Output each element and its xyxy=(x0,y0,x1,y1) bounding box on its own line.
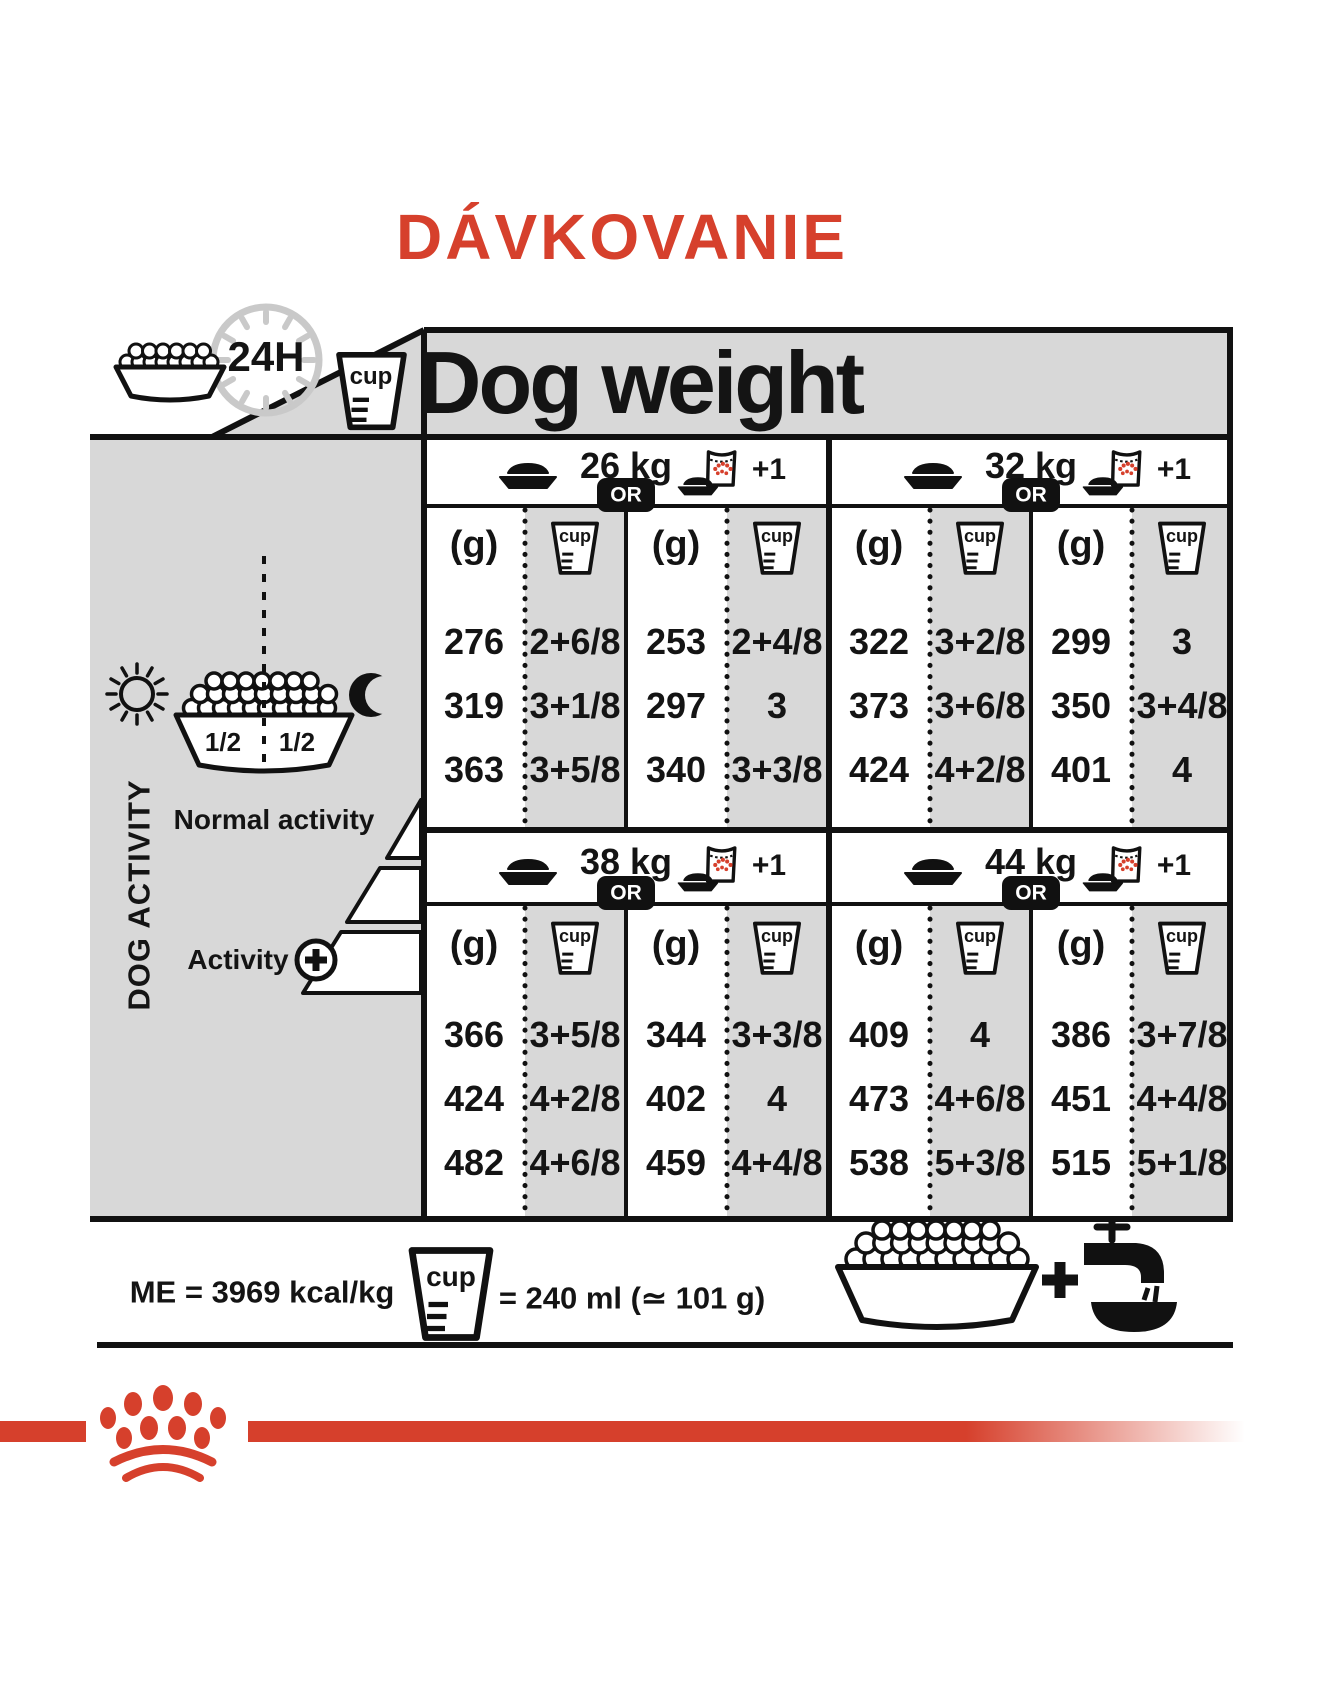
plus-one-label: +1 xyxy=(1157,851,1191,881)
or-badge-label: OR xyxy=(1015,485,1047,506)
value-cups: 4+4/8 xyxy=(1136,1081,1227,1117)
grams-column-header: (g) xyxy=(652,526,701,564)
value-grams: 538 xyxy=(849,1145,909,1181)
or-badge-label: OR xyxy=(610,485,642,506)
value-cups: 2+6/8 xyxy=(529,624,620,660)
plus-one-label: +1 xyxy=(752,455,786,485)
value-cups: 4+6/8 xyxy=(529,1145,620,1181)
energy-value-label: ME = 3969 kcal/kg xyxy=(130,1277,395,1308)
grams-column-header: (g) xyxy=(652,926,701,964)
value-grams: 386 xyxy=(1051,1017,1111,1053)
grams-column-header: (g) xyxy=(1057,526,1106,564)
value-grams: 340 xyxy=(646,752,706,788)
value-grams: 409 xyxy=(849,1017,909,1053)
value-cups: 3+7/8 xyxy=(1136,1017,1227,1053)
cup-equivalence-label: = 240 ml (≃ 101 g) xyxy=(499,1283,765,1314)
value-grams: 276 xyxy=(444,624,504,660)
value-cups: 3 xyxy=(767,688,787,724)
value-cups: 4+2/8 xyxy=(934,752,1025,788)
plus-icon xyxy=(1042,1262,1078,1298)
grams-column-header: (g) xyxy=(1057,926,1106,964)
half-portion-left-label: 1/2 xyxy=(205,729,241,755)
value-grams: 424 xyxy=(849,752,909,788)
or-badge-label: OR xyxy=(610,883,642,904)
value-cups: 3+2/8 xyxy=(934,624,1025,660)
plus-one-label: +1 xyxy=(752,851,786,881)
grams-column-header: (g) xyxy=(855,526,904,564)
value-grams: 515 xyxy=(1051,1145,1111,1181)
value-grams: 402 xyxy=(646,1081,706,1117)
value-grams: 299 xyxy=(1051,624,1111,660)
weight-label: 38 kg xyxy=(580,844,672,880)
value-grams: 350 xyxy=(1051,688,1111,724)
cup-column-header: cup xyxy=(964,927,996,945)
value-grams: 373 xyxy=(849,688,909,724)
value-grams: 322 xyxy=(849,624,909,660)
cup-column-header: cup xyxy=(761,527,793,545)
page-title: DÁVKOVANIE xyxy=(396,205,848,269)
grams-column-header: (g) xyxy=(450,526,499,564)
activity-plus-label: Activity xyxy=(187,946,288,974)
feeding-guide-page: DÁVKOVANIE 24H Dog weight cup DOG ACTIVI… xyxy=(0,0,1332,1684)
value-grams: 344 xyxy=(646,1017,706,1053)
cup-column-header: cup xyxy=(1166,527,1198,545)
water-tap-icon xyxy=(1084,1220,1177,1332)
grams-column-header: (g) xyxy=(450,926,499,964)
triangle-cup-label: cup xyxy=(350,365,393,389)
value-cups: 3+6/8 xyxy=(934,688,1025,724)
value-cups: 3+1/8 xyxy=(529,688,620,724)
value-cups: 3+5/8 xyxy=(529,1017,620,1053)
cup-column-header: cup xyxy=(559,527,591,545)
cup-column-header: cup xyxy=(559,927,591,945)
value-grams: 424 xyxy=(444,1081,504,1117)
value-grams: 253 xyxy=(646,624,706,660)
grams-column-header: (g) xyxy=(855,926,904,964)
dog-activity-label: DOG ACTIVITY xyxy=(124,779,155,1010)
value-grams: 319 xyxy=(444,688,504,724)
value-cups: 3+3/8 xyxy=(731,1017,822,1053)
value-cups: 4 xyxy=(1172,752,1192,788)
value-cups: 4+4/8 xyxy=(731,1145,822,1181)
dog-weight-heading: Dog weight xyxy=(418,339,862,427)
cup-column-header: cup xyxy=(964,527,996,545)
value-cups: 3+3/8 xyxy=(731,752,822,788)
value-cups: 3+4/8 xyxy=(1136,688,1227,724)
value-cups: 3+5/8 xyxy=(529,752,620,788)
moon-icon xyxy=(349,673,403,717)
daily-ration-label: 24H xyxy=(227,336,304,378)
plus-one-label: +1 xyxy=(1157,455,1191,485)
value-grams: 451 xyxy=(1051,1081,1111,1117)
value-cups: 5+1/8 xyxy=(1136,1145,1227,1181)
value-grams: 473 xyxy=(849,1081,909,1117)
value-cups: 5+3/8 xyxy=(934,1145,1025,1181)
value-cups: 3 xyxy=(1172,624,1192,660)
value-cups: 4+6/8 xyxy=(934,1081,1025,1117)
value-grams: 363 xyxy=(444,752,504,788)
normal-activity-label: Normal activity xyxy=(174,806,375,834)
cup-column-header: cup xyxy=(1166,927,1198,945)
weight-label: 26 kg xyxy=(580,448,672,484)
value-grams: 366 xyxy=(444,1017,504,1053)
value-cups: 4+2/8 xyxy=(529,1081,620,1117)
value-cups: 4 xyxy=(767,1081,787,1117)
value-grams: 401 xyxy=(1051,752,1111,788)
value-grams: 482 xyxy=(444,1145,504,1181)
footer-bowl-kibble-icon xyxy=(838,1221,1036,1327)
royal-canin-crown-logo xyxy=(100,1385,226,1478)
or-badge-label: OR xyxy=(1015,883,1047,904)
weight-label: 44 kg xyxy=(985,844,1077,880)
weight-label: 32 kg xyxy=(985,448,1077,484)
footer-cup-label: cup xyxy=(426,1263,476,1291)
value-cups: 4 xyxy=(970,1017,990,1053)
red-band xyxy=(0,1421,1245,1442)
cup-column-header: cup xyxy=(761,927,793,945)
half-portion-right-label: 1/2 xyxy=(279,729,315,755)
value-cups: 2+4/8 xyxy=(731,624,822,660)
value-grams: 459 xyxy=(646,1145,706,1181)
plus-circle-icon xyxy=(297,941,335,979)
bowl-kibble-icon xyxy=(116,344,224,400)
value-grams: 297 xyxy=(646,688,706,724)
